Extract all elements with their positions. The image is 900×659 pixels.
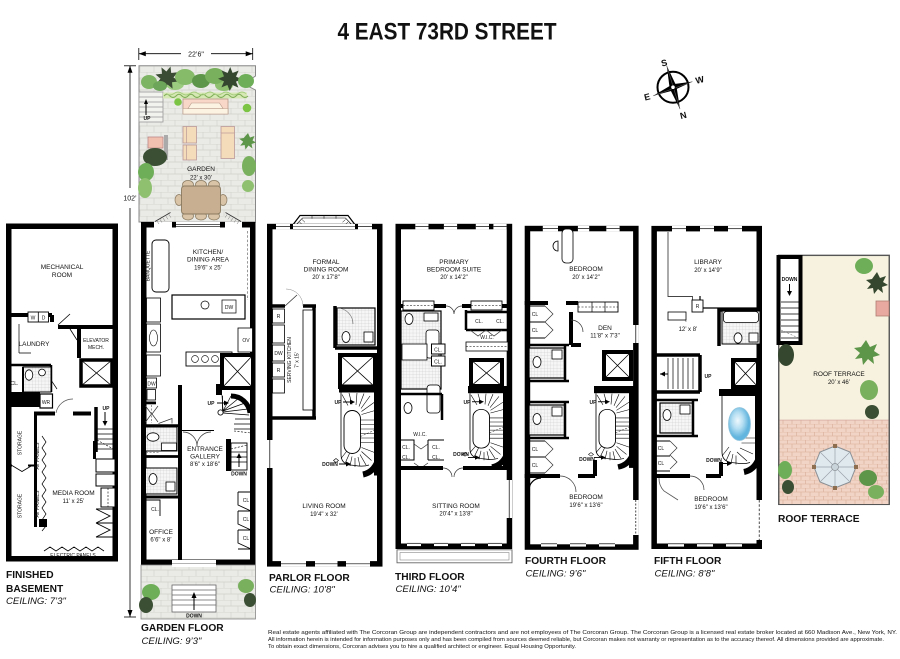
svg-text:CL: CL — [532, 463, 539, 469]
svg-text:ENTRANCE: ENTRANCE — [187, 446, 223, 453]
svg-text:All information herein is inte: All information herein is intended for i… — [268, 637, 884, 643]
svg-text:DOWN: DOWN — [322, 462, 338, 468]
svg-text:FINISHED: FINISHED — [6, 570, 54, 581]
svg-text:WR: WR — [42, 400, 51, 406]
svg-text:CL.: CL. — [11, 381, 19, 387]
svg-text:6’6" x 8’: 6’6" x 8’ — [150, 538, 171, 544]
svg-text:20’4" x 13’8": 20’4" x 13’8" — [439, 512, 472, 518]
svg-text:DOWN: DOWN — [231, 472, 247, 478]
svg-text:ROOF TERRACE: ROOF TERRACE — [813, 371, 865, 378]
svg-text:UP: UP — [335, 400, 343, 406]
svg-text:DW: DW — [274, 351, 283, 357]
svg-text:CL: CL — [658, 446, 665, 452]
svg-text:MEDIA ROOM: MEDIA ROOM — [52, 490, 94, 497]
svg-text:CL.: CL. — [432, 455, 440, 461]
svg-text:THIRD FLOOR: THIRD FLOOR — [395, 572, 465, 583]
svg-text:UP: UP — [103, 406, 111, 412]
svg-text:W.I.C.: W.I.C. — [413, 432, 427, 438]
svg-text:R: R — [696, 304, 700, 310]
svg-text:DW: DW — [225, 305, 234, 311]
svg-text:DEN: DEN — [598, 325, 612, 332]
svg-text:GARDEN: GARDEN — [187, 166, 215, 173]
svg-text:CL: CL — [532, 328, 539, 334]
svg-text:BANQUETTE: BANQUETTE — [146, 250, 152, 281]
svg-text:Real estate agents affiliated: Real estate agents affiliated with The C… — [268, 630, 897, 636]
svg-text:CL.: CL. — [496, 319, 504, 325]
svg-text:CEILING: 9’3": CEILING: 9’3" — [142, 636, 203, 647]
svg-text:UP: UP — [464, 400, 472, 406]
svg-text:ELEVATOR: ELEVATOR — [83, 338, 109, 344]
svg-text:FOURTH FLOOR: FOURTH FLOOR — [525, 556, 607, 567]
svg-text:FIFTH FLOOR: FIFTH FLOOR — [654, 556, 722, 567]
svg-text:UP: UP — [590, 400, 598, 406]
svg-text:20’ x 17’8": 20’ x 17’8" — [312, 275, 340, 281]
svg-text:DOWN: DOWN — [453, 452, 469, 458]
svg-text:DINING ROOM: DINING ROOM — [304, 267, 349, 274]
svg-text:W.I.C.: W.I.C. — [480, 335, 494, 341]
svg-text:BEDROOM: BEDROOM — [694, 496, 728, 503]
svg-text:CL.: CL. — [434, 360, 442, 366]
svg-text:OFFICE: OFFICE — [149, 529, 173, 536]
svg-text:R: R — [277, 314, 281, 320]
svg-text:ROOF TERRACE: ROOF TERRACE — [778, 514, 860, 525]
svg-text:CL.: CL. — [475, 319, 483, 325]
svg-text:PARLOR FLOOR: PARLOR FLOOR — [269, 573, 350, 584]
svg-text:ROOM: ROOM — [52, 272, 72, 279]
svg-text:12’ x 8’: 12’ x 8’ — [679, 327, 698, 333]
svg-text:CL: CL — [532, 447, 539, 453]
svg-text:DOWN: DOWN — [579, 457, 595, 463]
svg-text:19’4" x 32’: 19’4" x 32’ — [310, 512, 338, 518]
svg-text:CL.: CL. — [434, 348, 442, 354]
svg-text:8’6" x 18’6": 8’6" x 18’6" — [190, 462, 220, 468]
svg-text:4 EAST 73RD STREET: 4 EAST 73RD STREET — [338, 19, 557, 46]
svg-text:MECH.: MECH. — [88, 345, 104, 351]
svg-text:AV PANELS: AV PANELS — [35, 490, 41, 518]
svg-text:CL.: CL. — [402, 455, 410, 461]
svg-text:UP: UP — [208, 401, 216, 407]
svg-text:CL: CL — [243, 498, 250, 504]
svg-text:CL: CL — [532, 312, 539, 318]
svg-text:CL: CL — [243, 536, 250, 542]
svg-text:DINING AREA: DINING AREA — [187, 257, 230, 264]
svg-text:DOWN: DOWN — [186, 614, 202, 620]
svg-text:BEDROOM: BEDROOM — [569, 494, 603, 501]
svg-text:KITCHEN/: KITCHEN/ — [193, 249, 224, 256]
svg-text:LIBRARY: LIBRARY — [694, 259, 722, 266]
svg-text:BEDROOM: BEDROOM — [569, 266, 603, 273]
svg-text:20’ x 46’: 20’ x 46’ — [828, 380, 850, 386]
svg-text:PRIMARY: PRIMARY — [439, 259, 469, 266]
svg-text:R: R — [277, 368, 281, 374]
svg-text:19’6" x 13’6": 19’6" x 13’6" — [694, 505, 727, 511]
svg-text:19’6" x 13’6": 19’6" x 13’6" — [569, 503, 602, 509]
svg-text:11’8" x 7’3": 11’8" x 7’3" — [590, 334, 620, 340]
svg-text:BASEMENT: BASEMENT — [6, 584, 64, 595]
svg-text:DW: DW — [147, 382, 156, 388]
svg-text:SITTING ROOM: SITTING ROOM — [432, 503, 480, 510]
svg-text:7’ x 15’: 7’ x 15’ — [295, 352, 301, 368]
svg-text:CEILING: 8’8": CEILING: 8’8" — [655, 569, 716, 580]
svg-text:20’ x 14’2": 20’ x 14’2" — [572, 275, 600, 281]
svg-text:LAUNDRY: LAUNDRY — [19, 341, 51, 348]
svg-text:CL.: CL. — [402, 445, 410, 451]
svg-text:STORAGE: STORAGE — [18, 430, 24, 455]
svg-text:CL: CL — [243, 517, 250, 523]
svg-text:W: W — [31, 316, 36, 322]
svg-text:102’: 102’ — [123, 196, 137, 203]
svg-text:CL: CL — [658, 461, 665, 467]
svg-text:CEILING: 10’8": CEILING: 10’8" — [270, 585, 336, 596]
svg-text:OV: OV — [242, 338, 250, 344]
svg-text:20’ x 14’9": 20’ x 14’9" — [694, 268, 722, 274]
svg-text:19’6" x 25’: 19’6" x 25’ — [194, 266, 222, 272]
svg-text:22’6": 22’6" — [188, 51, 204, 58]
svg-text:To obtain exact dimensions, Co: To obtain exact dimensions, Corcoran adv… — [268, 644, 576, 650]
svg-text:UP: UP — [705, 374, 713, 380]
svg-text:UP: UP — [144, 116, 152, 122]
svg-text:CEILING: 10’4": CEILING: 10’4" — [396, 584, 462, 595]
svg-text:LIVING ROOM: LIVING ROOM — [302, 503, 345, 510]
svg-text:GALLERY: GALLERY — [190, 454, 221, 461]
svg-text:ELECTRIC PANELS: ELECTRIC PANELS — [50, 553, 96, 559]
svg-text:STORAGE: STORAGE — [18, 493, 24, 518]
svg-text:CEILING: 7’3": CEILING: 7’3" — [6, 596, 67, 607]
svg-text:MECHANICAL: MECHANICAL — [41, 264, 84, 271]
svg-text:11’ x 25’: 11’ x 25’ — [63, 499, 85, 505]
svg-text:SERVING KITCHEN: SERVING KITCHEN — [287, 337, 293, 383]
svg-text:20’ x 14’2": 20’ x 14’2" — [440, 275, 468, 281]
svg-text:D: D — [42, 316, 46, 322]
svg-text:CEILING: 9’6": CEILING: 9’6" — [526, 569, 587, 580]
svg-text:AV PANELS: AV PANELS — [35, 442, 41, 470]
svg-text:GARDEN FLOOR: GARDEN FLOOR — [141, 623, 224, 634]
svg-text:CL.: CL. — [432, 445, 440, 451]
svg-text:BEDROOM SUITE: BEDROOM SUITE — [427, 267, 482, 274]
svg-text:CL.: CL. — [151, 507, 159, 513]
svg-text:FORMAL: FORMAL — [312, 259, 339, 266]
svg-text:DOWN: DOWN — [782, 277, 798, 283]
